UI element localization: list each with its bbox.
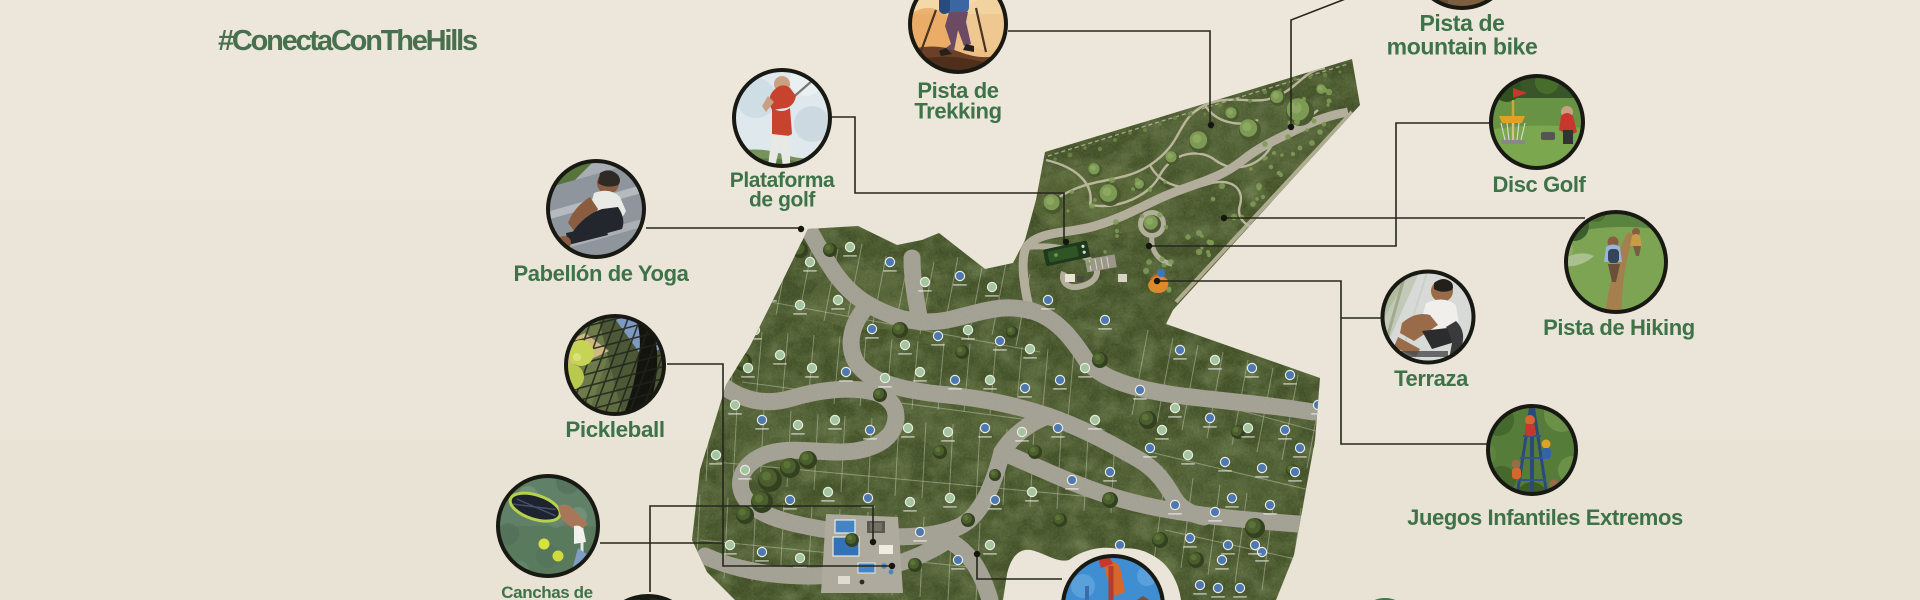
- svg-text:Pista de Hiking: Pista de Hiking: [1543, 315, 1695, 340]
- svg-text:Disc Golf: Disc Golf: [1493, 172, 1587, 197]
- svg-text:#ConectaConTheHills: #ConectaConTheHills: [218, 25, 477, 57]
- svg-text:Terraza: Terraza: [1394, 366, 1469, 391]
- svg-text:Pickleball: Pickleball: [565, 417, 664, 442]
- svg-text:Juegos Infantiles Extremos: Juegos Infantiles Extremos: [1407, 505, 1683, 530]
- svg-text:Pista deTrekking: Pista deTrekking: [914, 78, 1001, 124]
- svg-text:Canchas de: Canchas de: [501, 583, 592, 600]
- svg-text:Pabellón de Yoga: Pabellón de Yoga: [514, 261, 690, 286]
